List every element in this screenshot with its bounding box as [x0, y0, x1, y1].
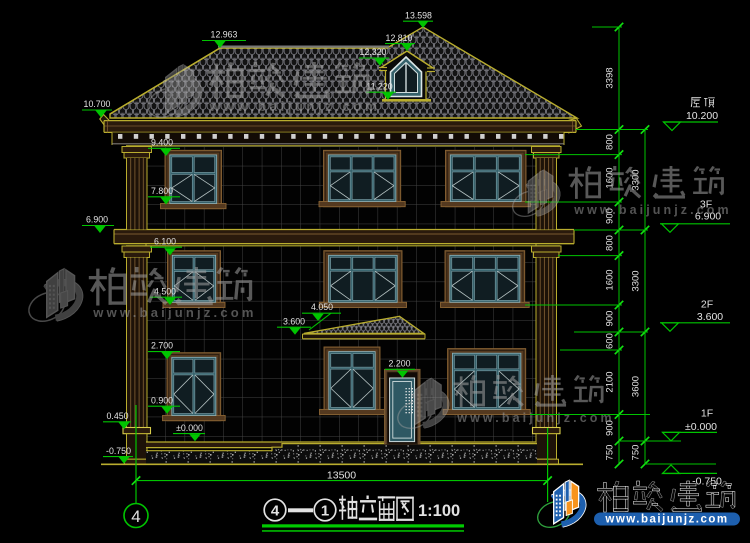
svg-text:0.900: 0.900: [151, 395, 173, 405]
svg-text:750: 750: [631, 445, 642, 461]
svg-text:7.800: 7.800: [151, 186, 173, 196]
svg-text:www.baijunjz.com: www.baijunjz.com: [604, 513, 728, 525]
svg-text:www.baijunjz.com: www.baijunjz.com: [456, 411, 614, 425]
svg-text:2100: 2100: [605, 371, 616, 392]
svg-text:4.050: 4.050: [311, 302, 333, 312]
svg-text:9.400: 9.400: [151, 138, 173, 148]
svg-text:750: 750: [605, 445, 616, 461]
svg-text:6.100: 6.100: [154, 236, 176, 246]
svg-text:0.450: 0.450: [106, 411, 128, 421]
svg-text:4: 4: [131, 507, 140, 526]
svg-text:±0.000: ±0.000: [176, 423, 203, 433]
svg-text:10.700: 10.700: [84, 99, 111, 109]
svg-text:1: 1: [321, 503, 329, 520]
svg-text:900: 900: [605, 311, 616, 327]
svg-text:800: 800: [605, 134, 616, 150]
svg-text:www.baijunjz.com: www.baijunjz.com: [209, 99, 381, 114]
svg-text:13500: 13500: [327, 470, 356, 482]
svg-text:10.200: 10.200: [686, 110, 718, 122]
svg-text:13.598: 13.598: [405, 11, 432, 21]
svg-text:12.963: 12.963: [211, 30, 238, 40]
svg-text:600: 600: [605, 333, 616, 349]
svg-text:3.600: 3.600: [283, 316, 305, 326]
svg-text:2F: 2F: [701, 299, 713, 311]
svg-text:11.220: 11.220: [366, 81, 392, 91]
svg-text:12.320: 12.320: [360, 47, 387, 57]
svg-text:4: 4: [271, 503, 280, 520]
svg-text:1:100: 1:100: [418, 502, 460, 520]
svg-text:1600: 1600: [605, 269, 616, 290]
svg-text:-0.750: -0.750: [106, 446, 131, 456]
svg-text:2.200: 2.200: [388, 358, 410, 368]
svg-text:3398: 3398: [605, 67, 616, 88]
svg-text:3300: 3300: [631, 270, 642, 291]
svg-text:3.600: 3.600: [697, 311, 723, 323]
svg-text:www.baijunjz.com: www.baijunjz.com: [92, 305, 256, 320]
svg-text:3600: 3600: [631, 376, 642, 397]
svg-text:1F: 1F: [701, 408, 713, 420]
svg-text:800: 800: [605, 235, 616, 251]
svg-text:6.900: 6.900: [86, 215, 108, 225]
svg-text:±0.000: ±0.000: [685, 421, 717, 433]
svg-text:2.700: 2.700: [151, 341, 173, 351]
svg-text:12.810: 12.810: [386, 33, 413, 43]
svg-text:www.baijunjz.com: www.baijunjz.com: [573, 203, 731, 217]
